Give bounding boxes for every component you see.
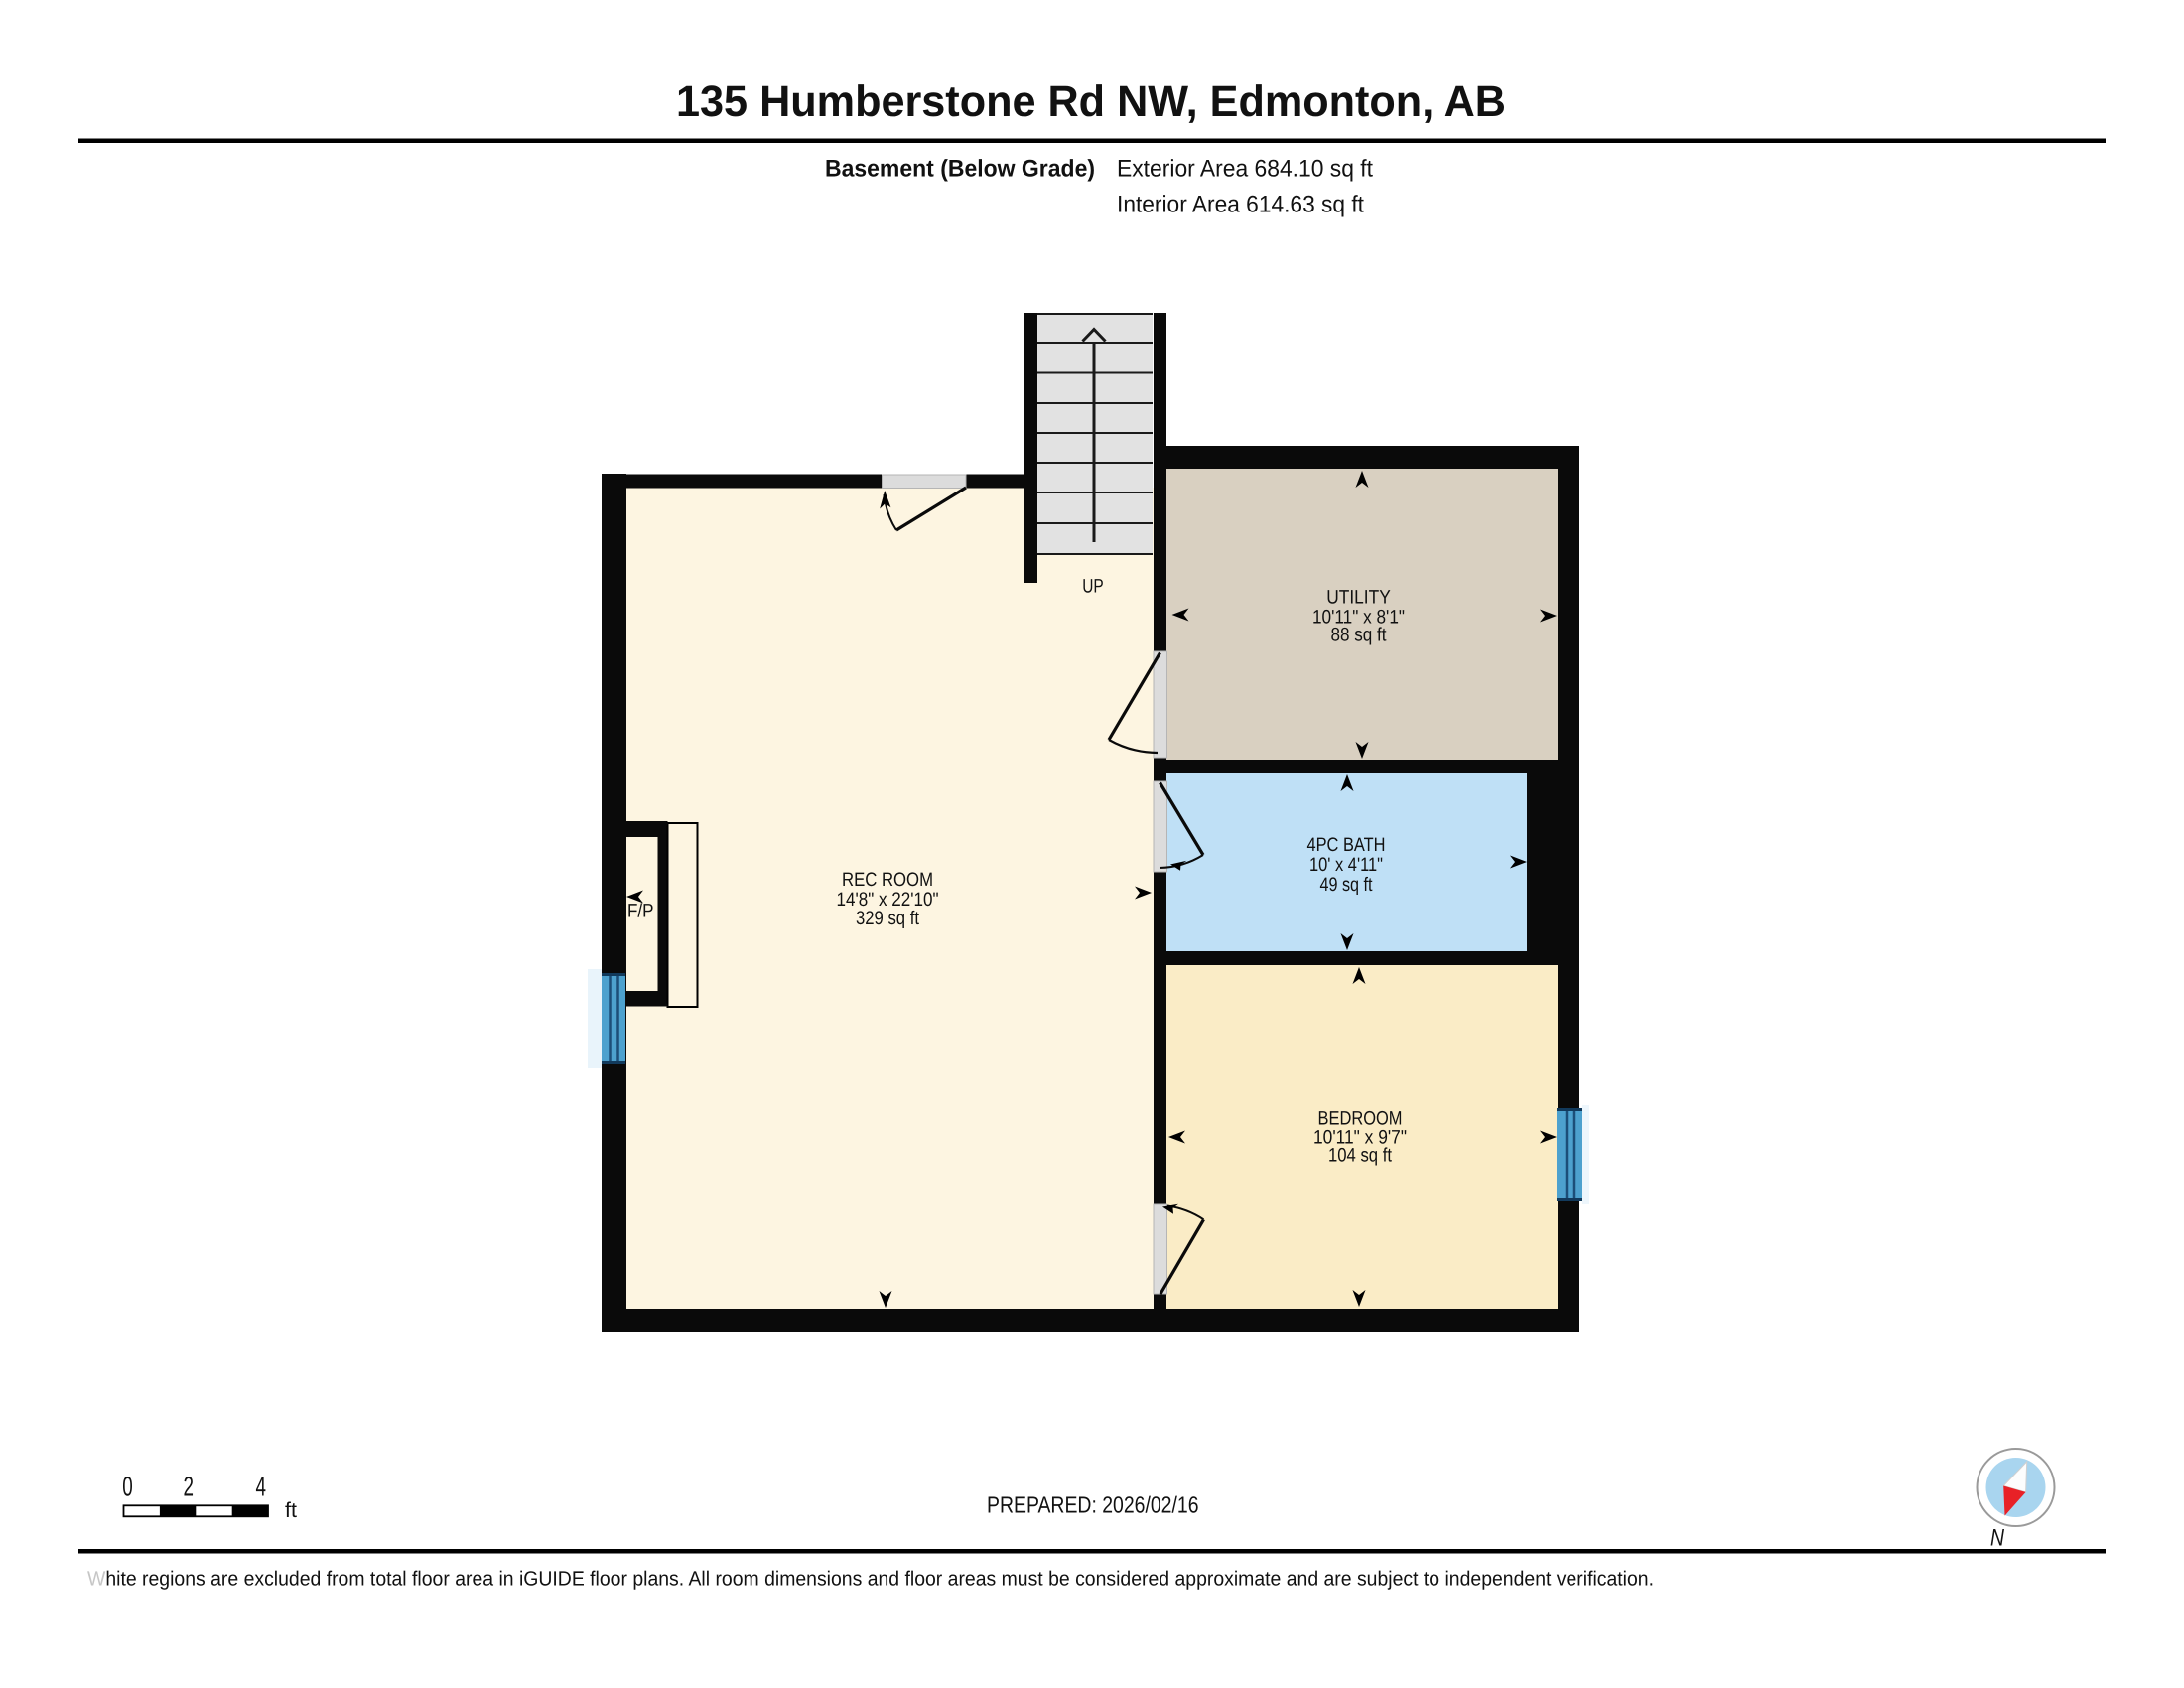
svg-text:ft: ft xyxy=(285,1498,297,1522)
svg-text:104 sq ft: 104 sq ft xyxy=(1328,1145,1392,1167)
svg-text:UP: UP xyxy=(1082,576,1104,598)
svg-text:UTILITY: UTILITY xyxy=(1326,587,1391,609)
svg-text:0: 0 xyxy=(122,1472,133,1502)
svg-text:135 Humberstone Rd NW, Edmonto: 135 Humberstone Rd NW, Edmonton, AB xyxy=(676,77,1506,126)
svg-text:49 sq ft: 49 sq ft xyxy=(1320,874,1373,896)
svg-text:Exterior Area 684.10 sq ft: Exterior Area 684.10 sq ft xyxy=(1117,156,1373,183)
svg-text:2: 2 xyxy=(184,1472,195,1502)
svg-text:White regions are excluded fro: White regions are excluded from total fl… xyxy=(87,1568,1654,1591)
svg-text:PREPARED: 2026/02/16: PREPARED: 2026/02/16 xyxy=(987,1492,1199,1518)
svg-text:4: 4 xyxy=(256,1472,267,1502)
svg-text:F/P: F/P xyxy=(627,901,654,922)
svg-text:329 sq ft: 329 sq ft xyxy=(856,908,919,929)
svg-text:Interior Area 614.63 sq ft: Interior Area 614.63 sq ft xyxy=(1117,192,1364,218)
svg-text:Basement (Below Grade): Basement (Below Grade) xyxy=(825,156,1095,183)
svg-text:REC ROOM: REC ROOM xyxy=(842,869,933,891)
svg-text:4PC BATH: 4PC BATH xyxy=(1307,834,1386,856)
svg-text:10' x 4'11": 10' x 4'11" xyxy=(1309,854,1383,876)
svg-text:N: N xyxy=(1990,1525,2005,1552)
svg-text:88 sq ft: 88 sq ft xyxy=(1331,625,1387,646)
